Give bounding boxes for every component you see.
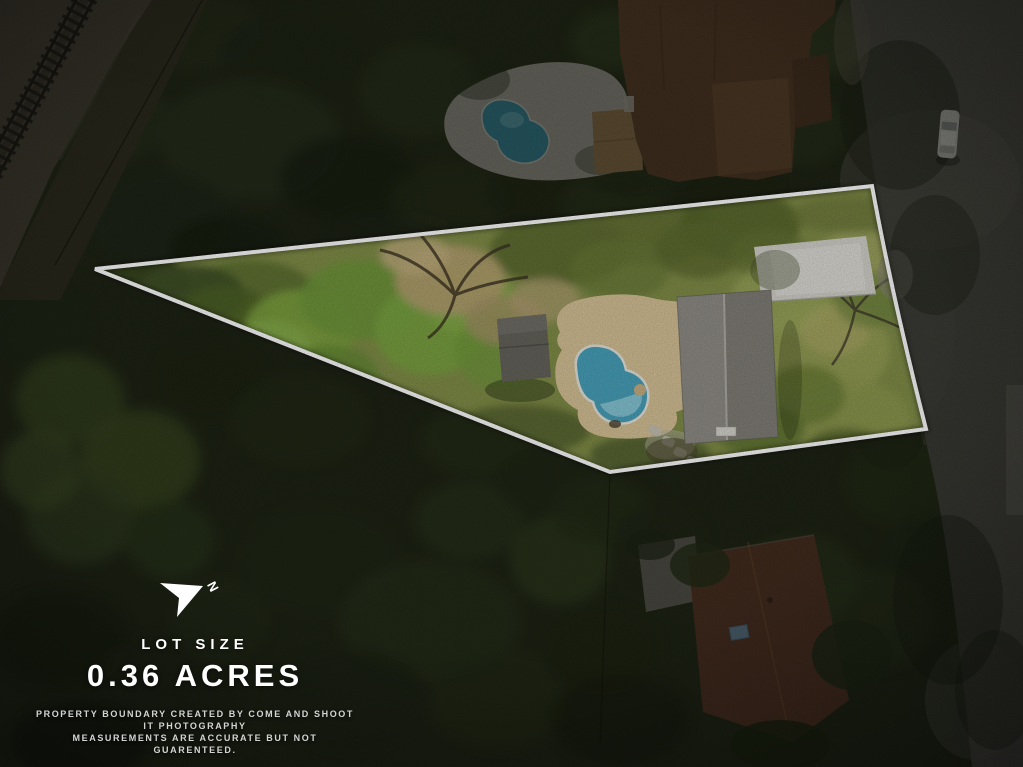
aerial-photo-stage: N LOT SIZE 0.36 ACRES PROPERTY BOUNDARY … — [0, 0, 1023, 767]
lot-size-label: LOT SIZE — [30, 636, 360, 653]
disclaimer: PROPERTY BOUNDARY CREATED BY COME AND SH… — [30, 708, 360, 756]
north-arrow: N — [148, 572, 248, 626]
north-letter: N — [204, 579, 222, 594]
lot-size-value: 0.36 ACRES — [30, 658, 360, 694]
info-overlay: N LOT SIZE 0.36 ACRES PROPERTY BOUNDARY … — [30, 570, 360, 756]
north-arrow-icon — [160, 583, 203, 617]
disclaimer-line1: PROPERTY BOUNDARY CREATED BY COME AND SH… — [30, 708, 360, 732]
disclaimer-line2: MEASUREMENTS ARE ACCURATE BUT NOT GUAREN… — [30, 732, 360, 756]
